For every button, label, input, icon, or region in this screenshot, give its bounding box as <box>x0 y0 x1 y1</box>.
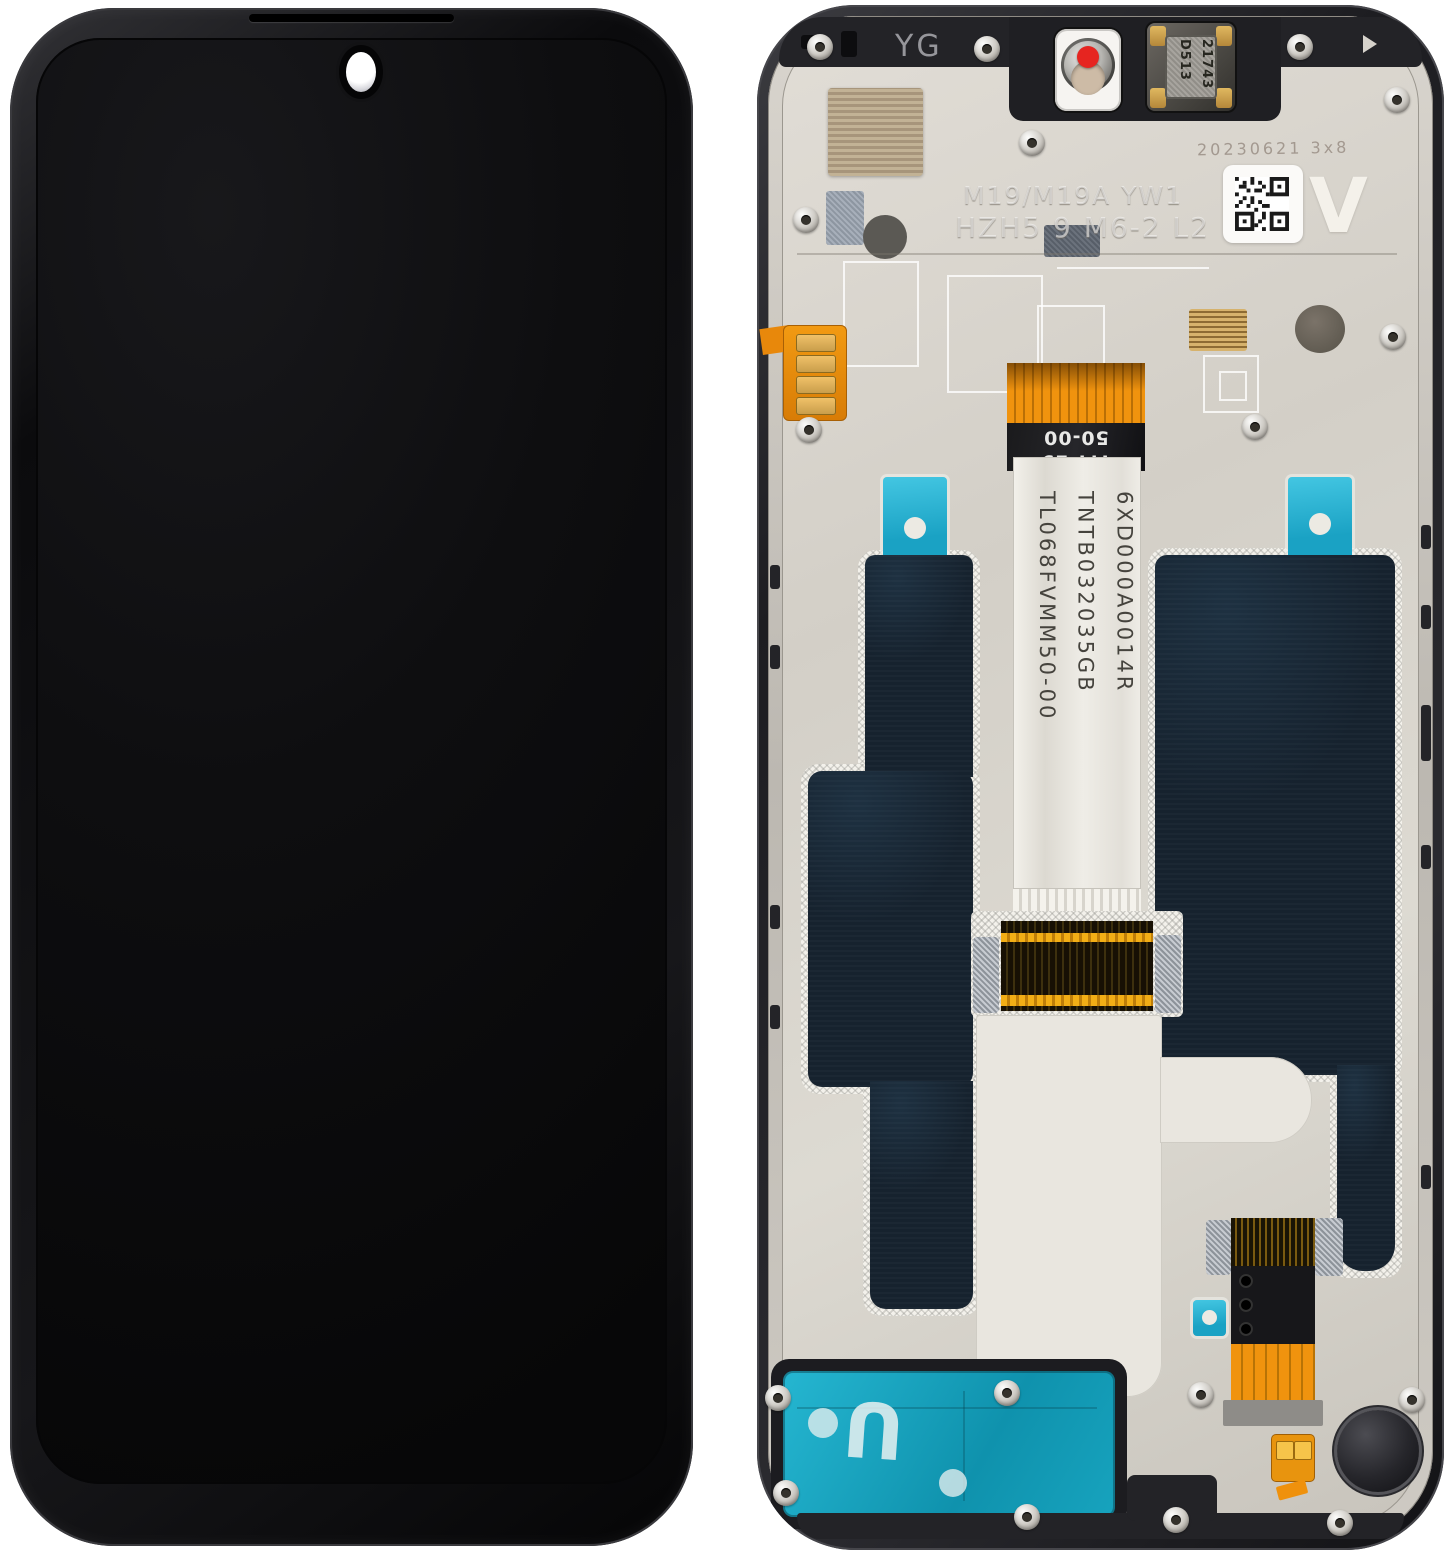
rail-notch <box>1421 845 1431 869</box>
connector-shield-pad <box>973 937 999 1013</box>
foam-dot <box>1295 305 1345 353</box>
screw-hole <box>1287 34 1313 60</box>
connector-shield-pad <box>1206 1220 1231 1275</box>
screw-hole <box>994 1380 1020 1406</box>
adhesive-dot <box>808 1408 838 1438</box>
punch-hole-camera <box>346 52 376 92</box>
product-photo: YG D513 21743 <box>0 0 1445 1553</box>
rail-notch <box>770 645 780 669</box>
version-marking: V <box>1309 161 1368 250</box>
side-flex-contact <box>761 325 855 425</box>
gold-contact-row <box>1001 933 1153 942</box>
graphite-sheet-left <box>808 771 973 1087</box>
screw-hole <box>1384 87 1410 113</box>
flex-body <box>783 325 847 421</box>
mesh-sticker <box>828 88 923 176</box>
housing-slot <box>841 31 857 57</box>
speaker-gold-contact <box>1216 88 1232 108</box>
gold-contact-pad <box>796 397 836 415</box>
rail-notch <box>1421 705 1431 761</box>
screw-hole <box>974 36 1000 62</box>
back-frame-assembly: YG D513 21743 <box>757 5 1444 1550</box>
gold-contact-row <box>1001 995 1153 1006</box>
bottom-plastic-band <box>797 1513 1404 1539</box>
earpiece-speaker-module: D513 21743 <box>1147 23 1235 111</box>
speaker-gold-contact <box>1216 26 1232 46</box>
earpiece-slot <box>249 14 454 22</box>
gold-contact-pad <box>796 355 836 373</box>
main-flex-label: TL068FVMM50-00 TNTB032035GB 6XD000A0014R <box>1013 457 1141 889</box>
tab-hole <box>1202 1310 1217 1325</box>
plate-seam <box>797 253 1397 255</box>
flex-label-text: TL068FVMM50-00 TNTB032035GB 6XD000A0014R <box>1013 457 1144 721</box>
connector-shield-pad <box>1155 935 1181 1013</box>
camera-red-dot-icon <box>1077 46 1099 68</box>
rail-notch <box>1421 1165 1431 1189</box>
screw-hole <box>1327 1510 1353 1536</box>
front-display-assembly <box>10 8 693 1546</box>
screw-hole <box>807 34 833 60</box>
graphite-sheet-left <box>865 555 973 777</box>
gold-contact-pad <box>796 376 836 394</box>
loudspeaker-adhesive: U <box>783 1371 1115 1517</box>
tab-hole <box>1309 513 1331 535</box>
flex-dot <box>1239 1274 1253 1288</box>
screw-hole <box>1163 1507 1189 1533</box>
graphite-sheet-right <box>1337 1065 1395 1271</box>
screw-hole <box>1399 1387 1425 1413</box>
adhesive-seam <box>797 1407 1097 1409</box>
screw-hole <box>1380 324 1406 350</box>
qr-code <box>1234 177 1290 231</box>
antenna-trace-line <box>1057 267 1209 269</box>
bottom-flex-connector <box>1193 1210 1343 1425</box>
qr-code-sticker <box>1223 165 1303 243</box>
connector-gold-mesh <box>1231 1218 1315 1266</box>
date-stamp: 20230621 3x8 <box>1197 138 1350 160</box>
speaker-gold-contact <box>1150 26 1166 46</box>
gold-mesh-sticker <box>1189 309 1247 351</box>
graphite-sheet-left <box>870 1081 973 1309</box>
screw-hole <box>1019 130 1045 156</box>
adhesive-pad <box>976 1015 1162 1397</box>
flex-stripe-section <box>1013 889 1141 913</box>
tab-hole <box>904 517 926 539</box>
graphite-sheet-right <box>1155 555 1395 1075</box>
main-flex-orange-section <box>1007 363 1145 425</box>
rail-notch <box>770 905 780 929</box>
flex-dot <box>1239 1322 1253 1336</box>
adhesive-dot <box>939 1469 967 1497</box>
adhesive-tab-cyan <box>1288 477 1352 561</box>
arrow-right-icon <box>1363 35 1377 53</box>
gold-contact-pad <box>796 334 836 352</box>
screw-hole <box>765 1385 791 1411</box>
antenna-trace-outline <box>1219 371 1247 401</box>
screw-hole <box>1242 414 1268 440</box>
screw-hole <box>1014 1504 1040 1530</box>
front-camera-module <box>1055 29 1121 111</box>
connector-shield-pad <box>1315 1218 1343 1276</box>
lcd-connector-base <box>971 911 1183 1017</box>
yg-marking: YG <box>895 29 943 64</box>
speaker-code: D513 21743 <box>1165 35 1217 89</box>
rail-notch <box>1421 605 1431 629</box>
flex-orange-section <box>1231 1344 1315 1400</box>
rail-notch <box>770 565 780 589</box>
flex-black-section <box>1231 1266 1315 1344</box>
lcd-connector <box>1001 921 1153 1011</box>
screw-hole <box>796 417 822 443</box>
flex-dot <box>1239 1298 1253 1312</box>
adhesive-tab-cyan <box>1193 1300 1226 1336</box>
connector-gray-bar <box>1223 1400 1323 1426</box>
screw-hole <box>1188 1382 1214 1408</box>
motor-gold-contact <box>1272 1435 1314 1481</box>
camera-speaker-housing <box>1009 17 1281 121</box>
speaker-gold-contact <box>1150 88 1166 108</box>
gold-contact-pad <box>1276 1441 1294 1460</box>
frame-etch-line1: M19/M19A YW1 <box>963 181 1183 210</box>
adhesive-tab-cyan <box>883 477 947 563</box>
gold-contact-pad <box>1294 1441 1312 1460</box>
u-marking: U <box>840 1383 908 1476</box>
display-screen <box>36 38 667 1484</box>
speaker-membrane: D513 21743 <box>1165 35 1217 99</box>
frame-etch-line2: HZH5 9 M6-2 L2 <box>955 211 1210 244</box>
adhesive-pad <box>1160 1057 1312 1143</box>
screw-hole <box>793 207 819 233</box>
rail-notch <box>770 1005 780 1029</box>
back-frame-clip: YG D513 21743 <box>757 5 1444 1550</box>
gray-sticker <box>826 191 864 245</box>
rail-notch <box>1421 525 1431 549</box>
screw-hole <box>773 1480 799 1506</box>
vibration-motor <box>1337 1410 1419 1492</box>
